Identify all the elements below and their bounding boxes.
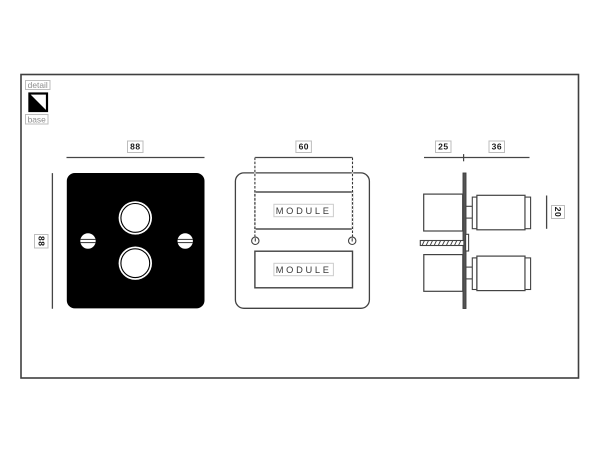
- svg-text:36: 36: [492, 142, 502, 152]
- svg-text:88: 88: [130, 142, 140, 152]
- svg-text:base: base: [28, 114, 47, 124]
- svg-text:detail: detail: [28, 80, 48, 90]
- svg-text:MODULE: MODULE: [276, 206, 332, 216]
- svg-text:MODULE: MODULE: [276, 265, 332, 275]
- svg-text:88: 88: [36, 236, 46, 246]
- svg-text:25: 25: [438, 142, 448, 152]
- svg-text:20: 20: [553, 207, 563, 217]
- svg-text:60: 60: [299, 142, 309, 152]
